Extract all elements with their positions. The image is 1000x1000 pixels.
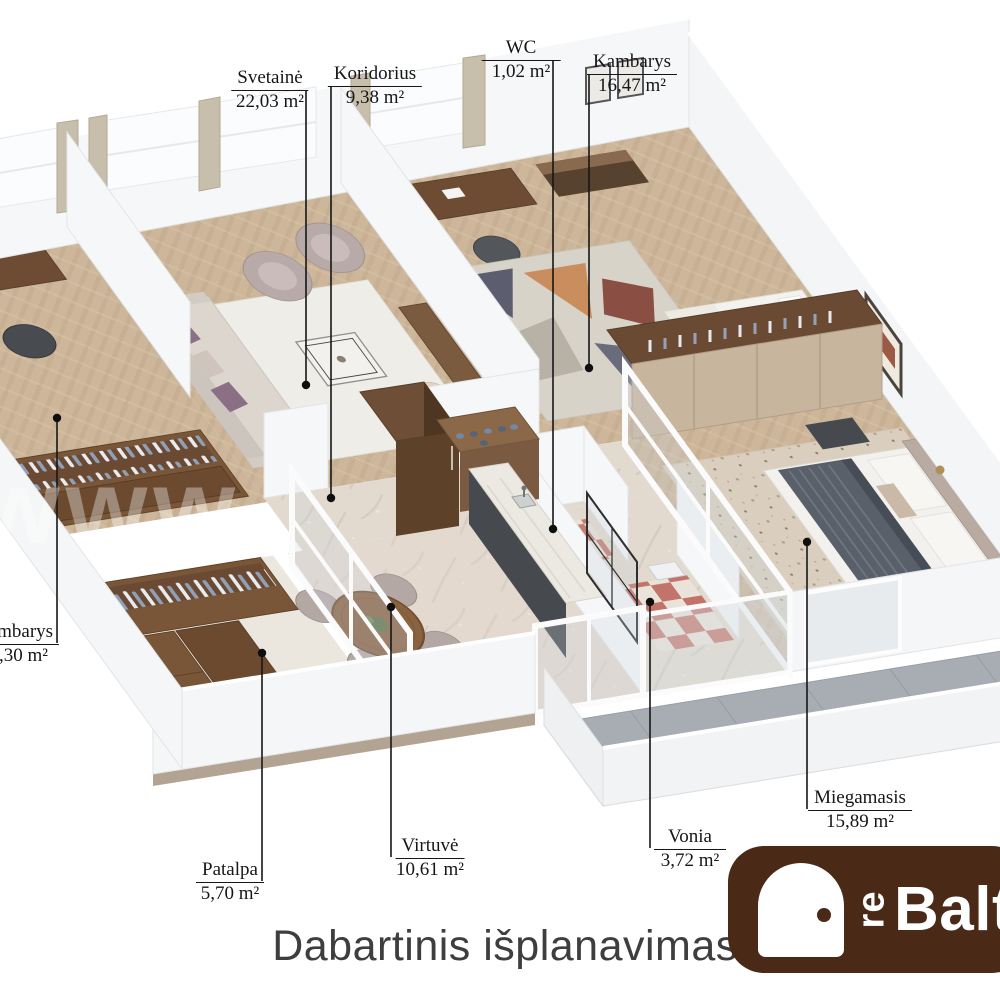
- room-name: Kambarys: [587, 52, 677, 75]
- faucet: [522, 486, 527, 491]
- room-area: 3,72 m²: [654, 850, 726, 872]
- room-label-patalpa: Patalpa 5,70 m²: [196, 860, 264, 905]
- room-area: 9,38 m²: [328, 87, 422, 109]
- room-label-kambarys-left: Kambarys 15,30 m²: [0, 622, 59, 667]
- room-area: 10,61 m²: [396, 859, 465, 881]
- wall-sconce: [936, 466, 945, 475]
- room-label-svetaine: Svetainė 22,03 m²: [231, 68, 308, 113]
- curtain: [199, 97, 220, 191]
- room-name: Svetainė: [231, 68, 308, 91]
- room-name: WC: [482, 38, 561, 61]
- room-name: Kambarys: [0, 622, 59, 645]
- floor-plan-page: www Svetainė 22,03 m² Koridorius 9,38 m²…: [0, 0, 1000, 1000]
- logo-prefix: re: [850, 888, 894, 931]
- room-name: Miegamasis: [808, 788, 912, 811]
- room-label-kambarys: Kambarys 16,47 m²: [587, 52, 677, 97]
- room-name: Patalpa: [196, 860, 264, 883]
- room-area: 22,03 m²: [231, 91, 308, 113]
- room-area: 5,70 m²: [196, 883, 264, 905]
- room-area: 15,89 m²: [808, 811, 912, 833]
- room-label-koridorius: Koridorius 9,38 m²: [328, 64, 422, 109]
- watermark: www: [0, 448, 241, 568]
- room-label-wc: WC 1,02 m²: [482, 38, 561, 83]
- doorknob-icon: [817, 908, 831, 922]
- room-name: Virtuvė: [396, 836, 465, 859]
- room-label-vonia: Vonia 3,72 m²: [654, 827, 726, 872]
- door-icon: [758, 863, 844, 957]
- room-area: 15,30 m²: [0, 645, 59, 667]
- page-title: Dabartinis išplanavimas: [272, 922, 738, 971]
- balcony-door: [806, 578, 900, 665]
- room-area: 16,47 m²: [587, 75, 677, 97]
- room-area: 1,02 m²: [482, 61, 561, 83]
- room-label-miegamasis: Miegamasis 15,89 m²: [808, 788, 912, 833]
- room-label-virtuve: Virtuvė 10,61 m²: [396, 836, 465, 881]
- room-name: Vonia: [654, 827, 726, 850]
- company-logo: re Baltic: [728, 846, 1000, 973]
- logo-wordmark: Baltic: [894, 874, 1000, 945]
- room-name: Koridorius: [328, 64, 422, 87]
